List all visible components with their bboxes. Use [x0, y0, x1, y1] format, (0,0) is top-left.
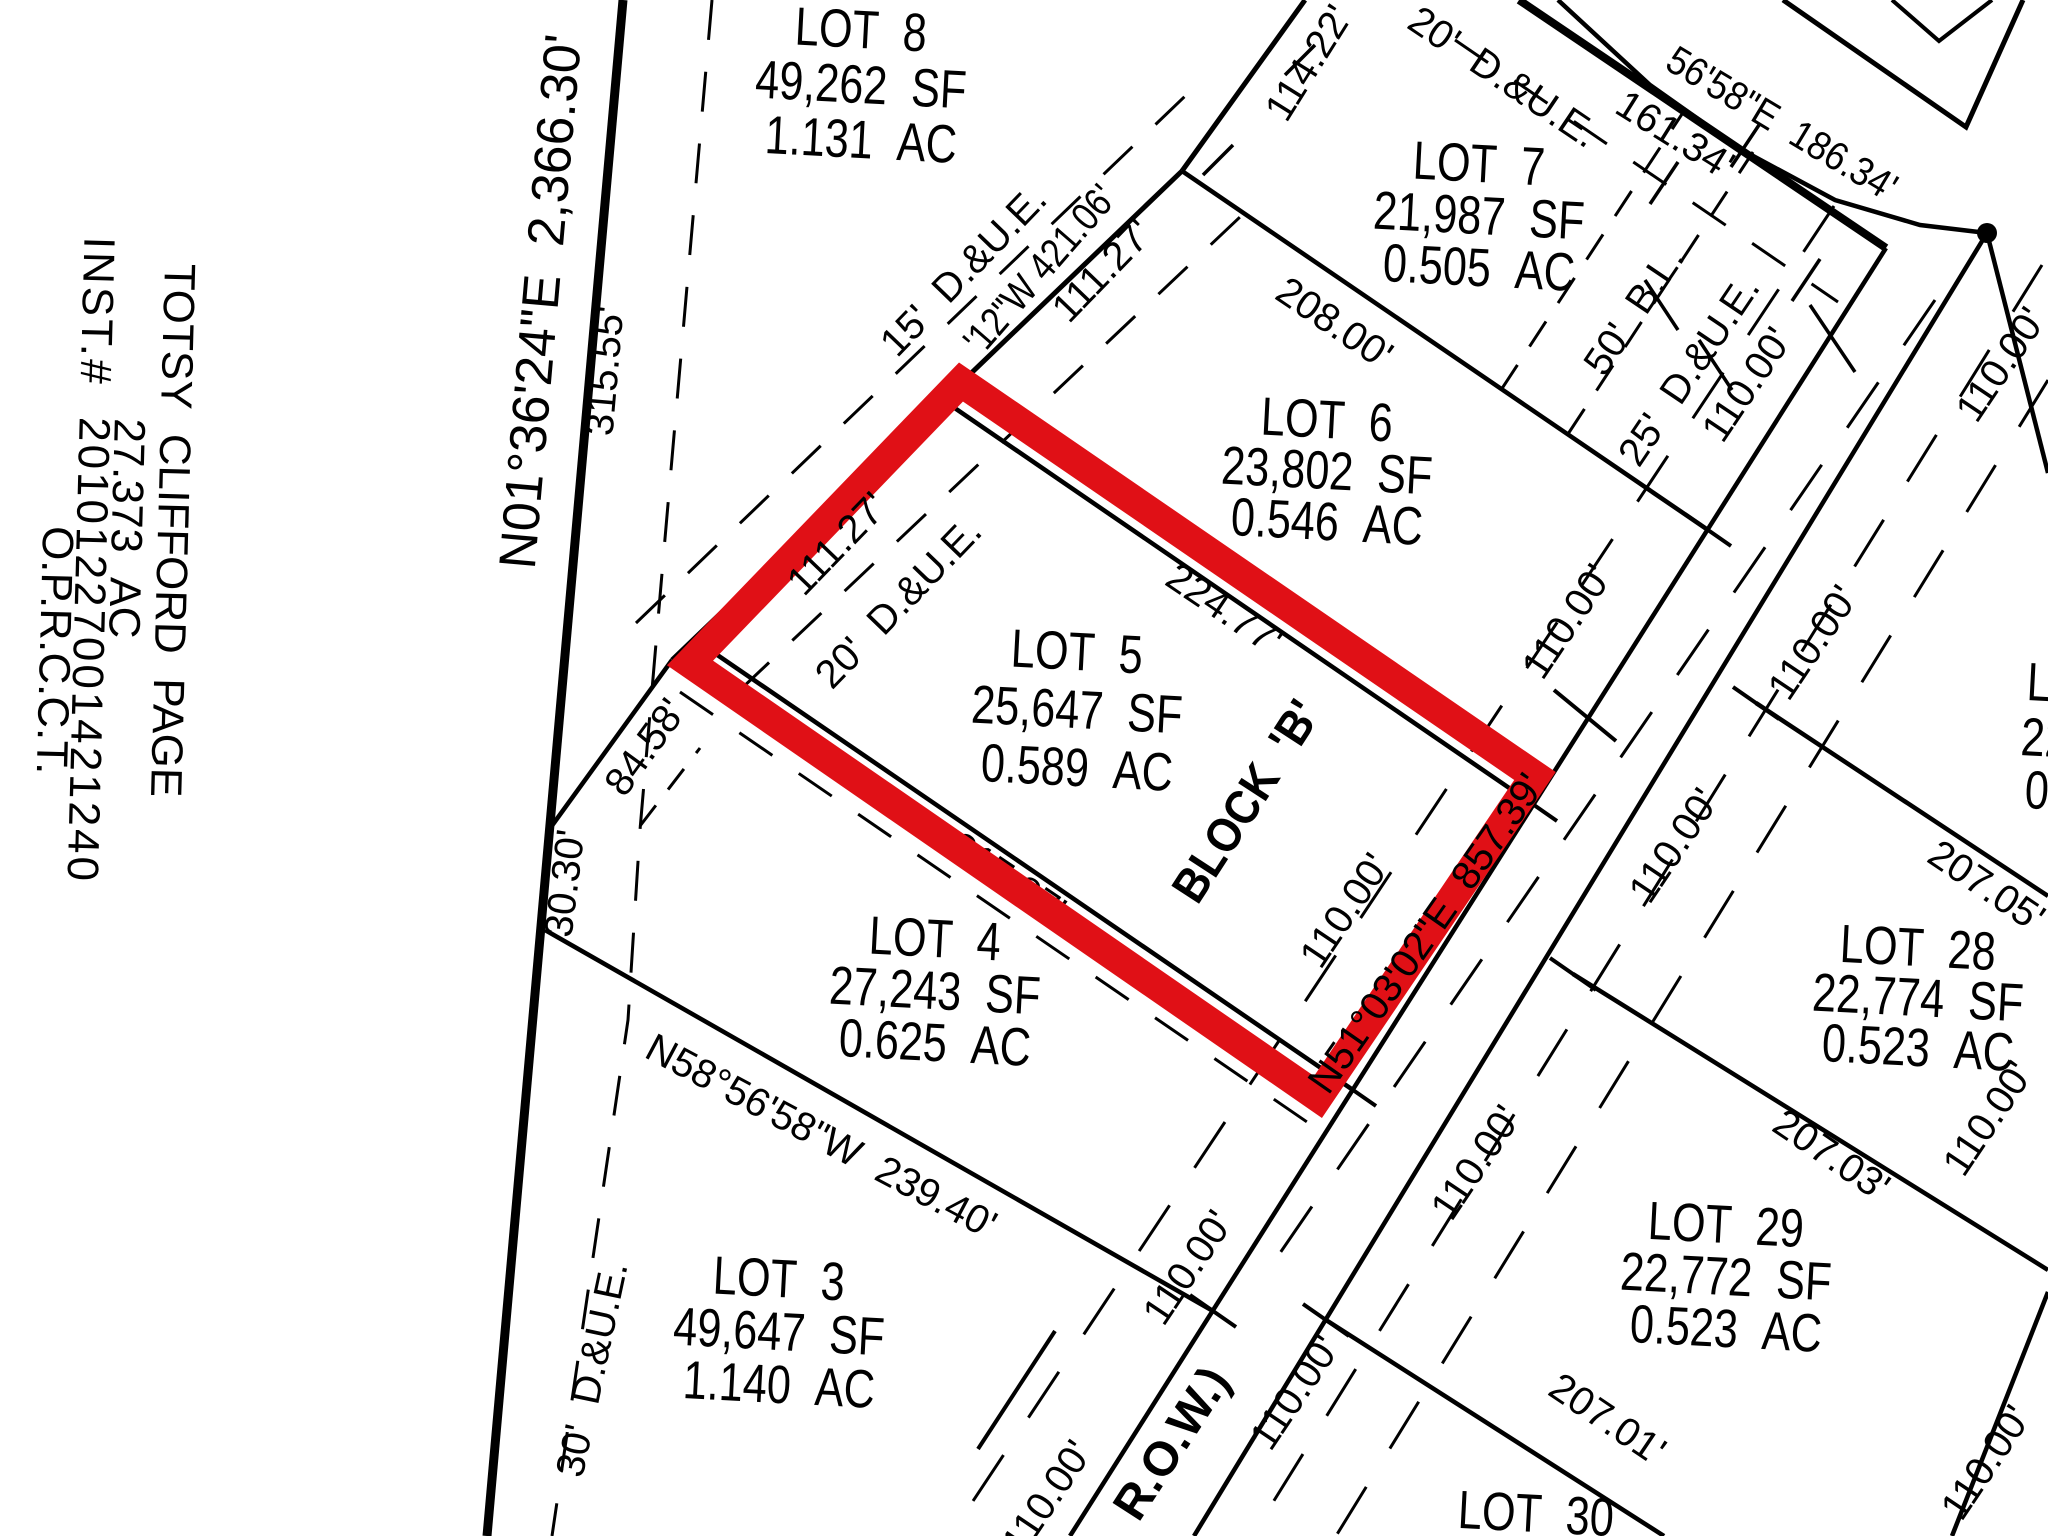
svg-text:1.140 AC: 1.140 AC [681, 1351, 876, 1421]
svg-text:0.546 AC: 0.546 AC [1229, 488, 1424, 558]
svg-text:1.131 AC: 1.131 AC [763, 106, 958, 176]
svg-text:0.523 AC: 0.523 AC [1820, 1014, 2015, 1084]
svg-text:0.625 AC: 0.625 AC [837, 1009, 1032, 1079]
svg-text:0.523 AC: 0.523 AC [1628, 1295, 1823, 1365]
svg-text:0.505 AC: 0.505 AC [1381, 234, 1576, 304]
svg-text:0.589 AC: 0.589 AC [979, 734, 1174, 804]
svg-text:LOT 30: LOT 30 [1456, 1480, 1615, 1536]
svg-text:0.5: 0.5 [2023, 761, 2048, 824]
svg-text:LOT 5: LOT 5 [1009, 619, 1144, 685]
svg-text:O.P.R.C.C.T.: O.P.R.C.C.T. [27, 525, 82, 775]
